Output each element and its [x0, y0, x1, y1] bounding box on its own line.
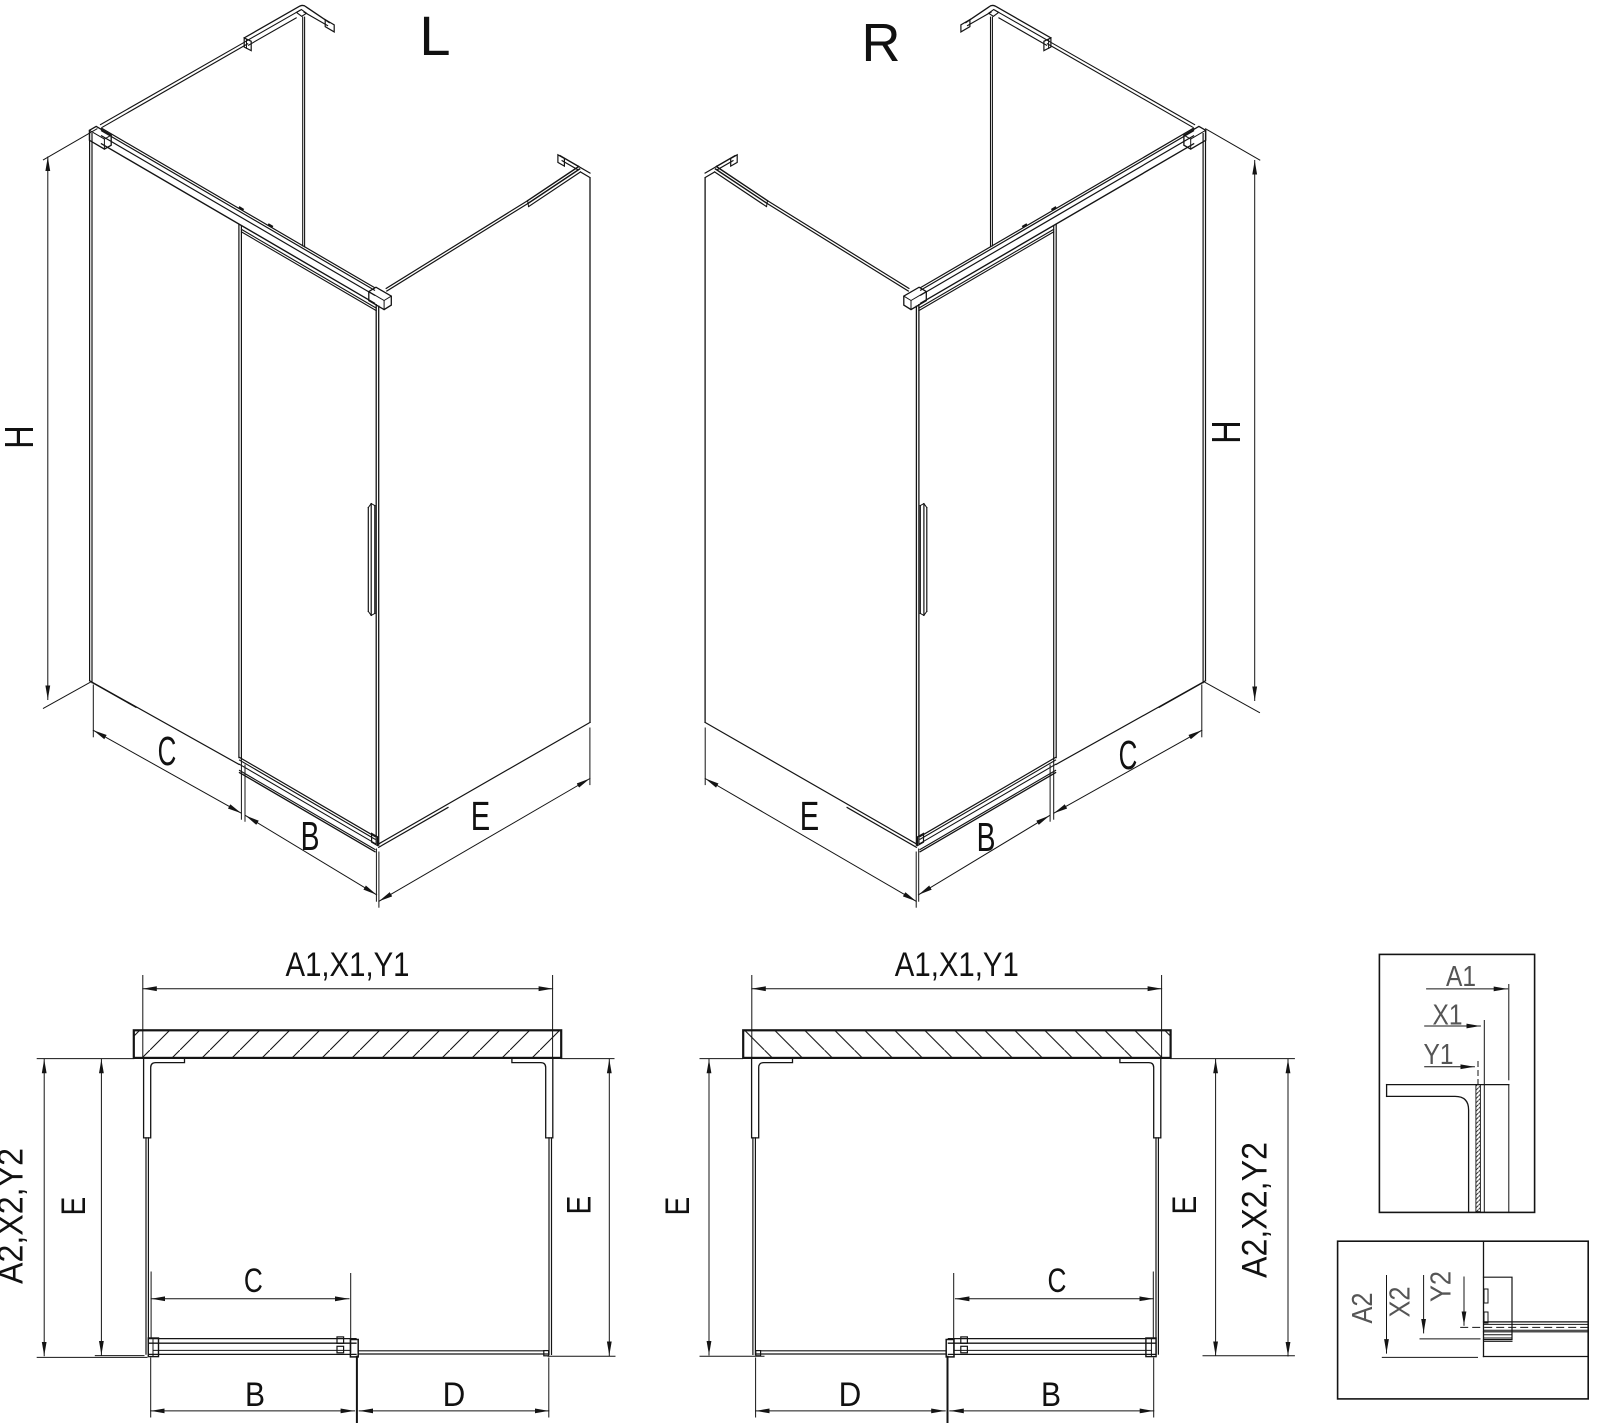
svg-text:A1,X1,Y1: A1,X1,Y1	[286, 946, 410, 984]
svg-text:E: E	[658, 1197, 696, 1216]
svg-text:Y2: Y2	[1426, 1271, 1458, 1302]
svg-text:C: C	[1119, 733, 1138, 778]
svg-text:B: B	[977, 815, 996, 860]
svg-text:E: E	[54, 1197, 92, 1216]
svg-text:C: C	[244, 1262, 263, 1300]
svg-text:D: D	[839, 1375, 862, 1414]
svg-text:B: B	[245, 1375, 265, 1413]
svg-text:R: R	[862, 13, 901, 73]
svg-text:A2: A2	[1347, 1293, 1379, 1324]
svg-text:X1: X1	[1433, 1000, 1463, 1032]
svg-text:L: L	[419, 4, 450, 67]
svg-text:E: E	[471, 793, 490, 839]
svg-text:A2,X2,Y2: A2,X2,Y2	[0, 1148, 31, 1284]
svg-text:A1,X1,Y1: A1,X1,Y1	[895, 946, 1019, 984]
svg-text:A2,X2,Y2: A2,X2,Y2	[1236, 1142, 1275, 1278]
svg-text:D: D	[443, 1375, 466, 1414]
svg-text:Y1: Y1	[1424, 1039, 1454, 1071]
svg-text:H: H	[0, 425, 42, 448]
svg-text:E: E	[560, 1196, 598, 1215]
svg-text:E: E	[800, 793, 819, 839]
svg-text:H: H	[1203, 420, 1248, 443]
svg-text:B: B	[1041, 1375, 1061, 1413]
svg-text:C: C	[1048, 1262, 1067, 1300]
svg-text:B: B	[301, 814, 320, 859]
svg-text:C: C	[158, 729, 177, 774]
svg-text:X2: X2	[1385, 1287, 1417, 1318]
svg-text:A1: A1	[1446, 961, 1476, 993]
svg-text:E: E	[1165, 1196, 1203, 1215]
